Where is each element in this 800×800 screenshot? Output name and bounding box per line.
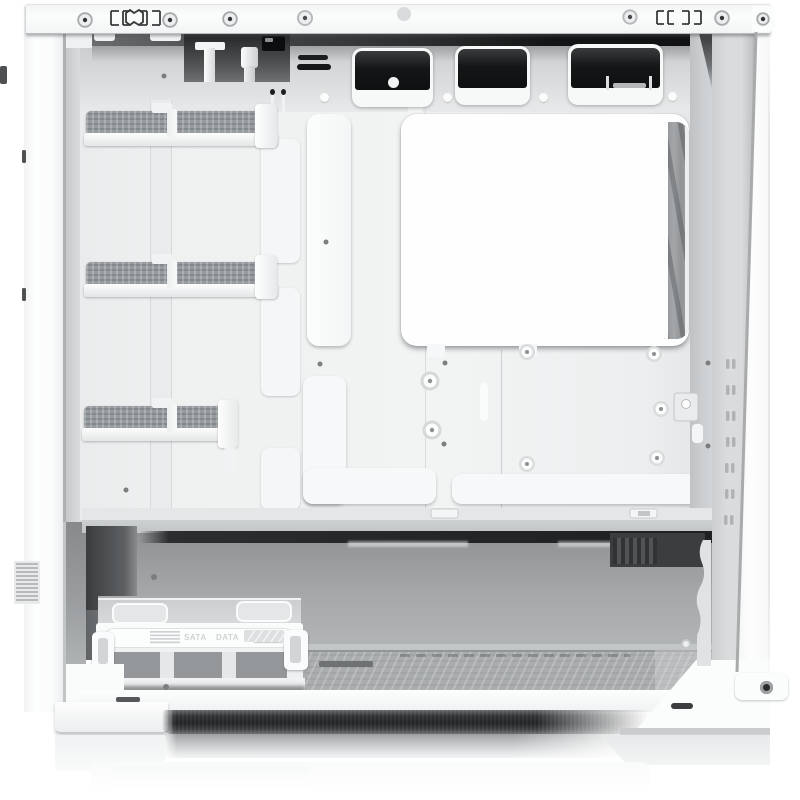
svg-text:DATA: DATA	[216, 633, 239, 642]
svg-text:SATA: SATA	[184, 633, 207, 642]
